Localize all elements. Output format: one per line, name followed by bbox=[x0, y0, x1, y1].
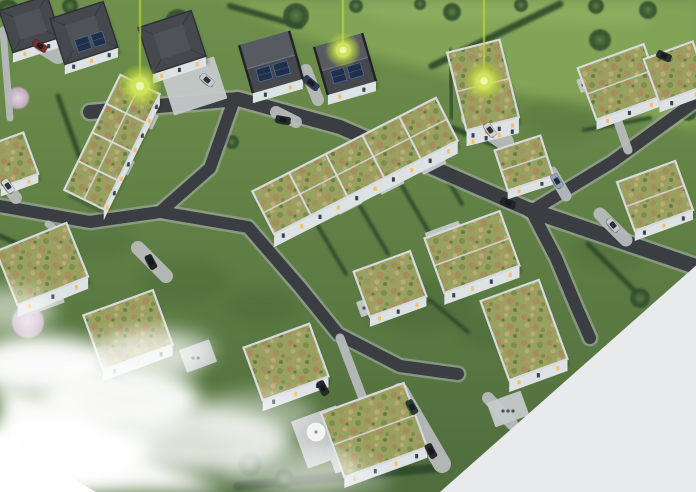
development-aerial-view bbox=[0, 0, 696, 492]
fog-cloud bbox=[195, 391, 315, 439]
terrace-furniture bbox=[506, 409, 509, 412]
terrace-furniture bbox=[501, 409, 504, 412]
marker-core bbox=[340, 47, 347, 54]
terrace-furniture bbox=[362, 306, 365, 309]
marker-core bbox=[480, 77, 488, 85]
fog-cloud bbox=[80, 336, 200, 384]
tree bbox=[589, 29, 611, 51]
tree bbox=[639, 1, 657, 19]
tree bbox=[443, 3, 461, 21]
site-plan bbox=[0, 0, 696, 492]
tree bbox=[630, 288, 650, 308]
terrace-furniture bbox=[511, 409, 514, 412]
tree bbox=[283, 3, 309, 29]
parasol-pole bbox=[314, 430, 317, 433]
marker-core bbox=[136, 82, 144, 90]
